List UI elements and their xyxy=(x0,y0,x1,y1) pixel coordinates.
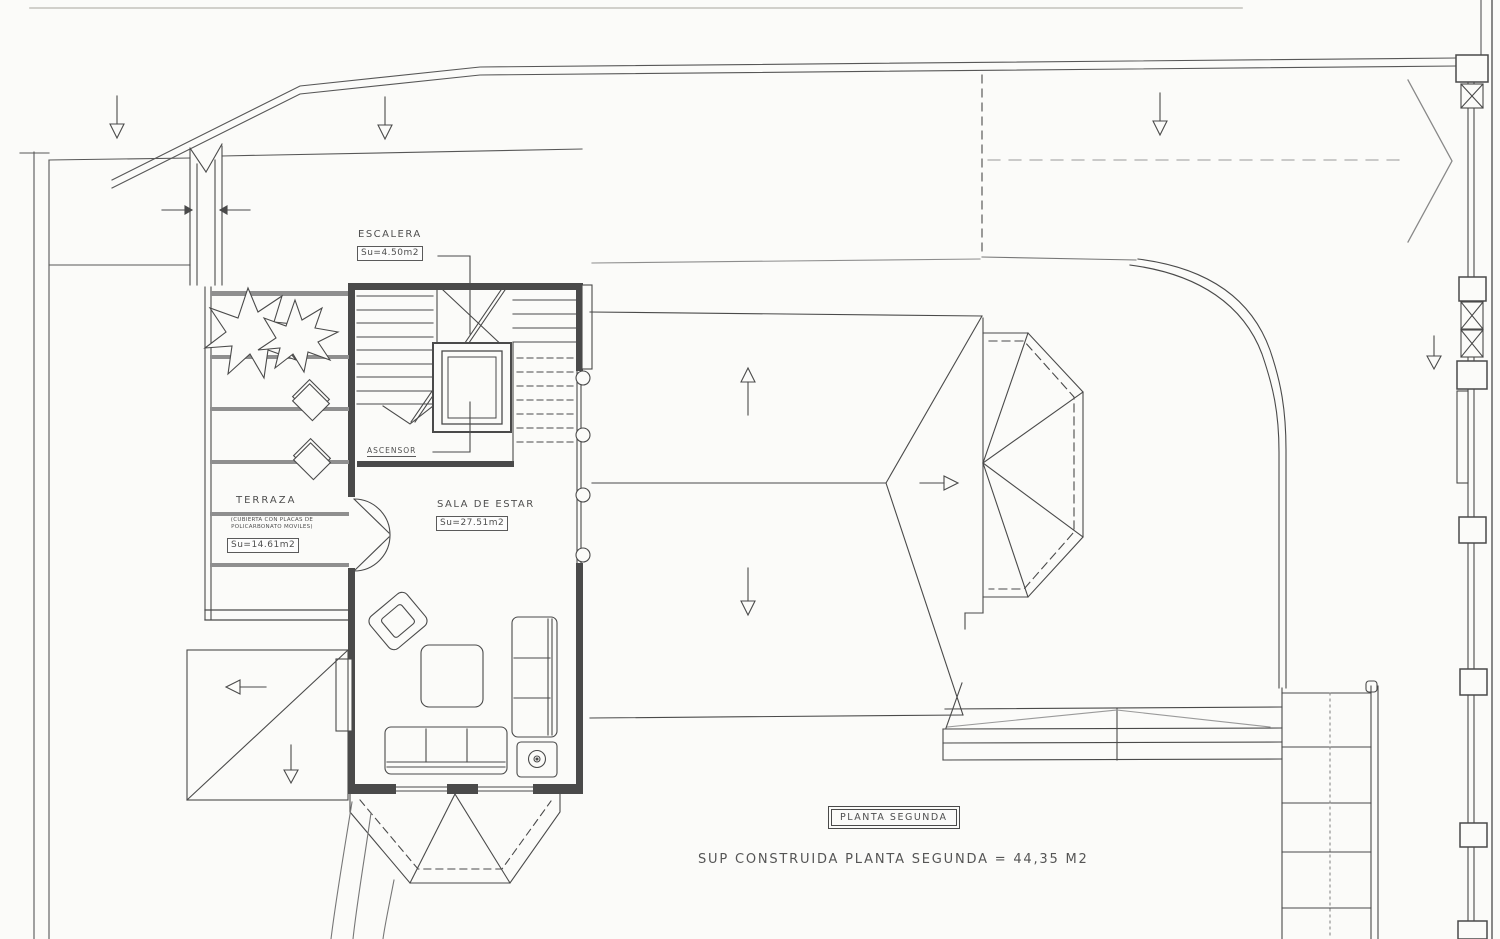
floor-title-box: PLANTA SEGUNDA xyxy=(828,806,960,829)
ascensor-label: ASCENSOR xyxy=(367,446,416,457)
access-area xyxy=(982,75,1452,260)
elevator-shaft xyxy=(433,343,511,432)
slope-arrow-down-1 xyxy=(110,96,124,138)
slope-arrow-down-3 xyxy=(1153,93,1167,135)
boundary-fence xyxy=(1456,55,1488,939)
escalera-label: ESCALERA xyxy=(358,229,422,240)
sofa-horizontal xyxy=(385,727,507,774)
slope-arrow-down-2 xyxy=(378,97,392,139)
slope-arrow-down-5 xyxy=(1427,336,1441,369)
channel-wall xyxy=(190,144,222,285)
garden-path-curves xyxy=(331,802,394,939)
built-area-text: SUP CONSTRUIDA PLANTA SEGUNDA = 44,35 M2 xyxy=(698,852,1089,867)
slope-arrow-left xyxy=(226,680,266,694)
porch-roof-strips xyxy=(943,683,1282,760)
fence-x-posts xyxy=(1461,84,1483,357)
bay-window-roof xyxy=(350,794,560,883)
main-roof xyxy=(590,312,982,718)
roof-arrow-up xyxy=(741,368,755,415)
terrace-table-2 xyxy=(291,439,332,480)
double-door xyxy=(354,499,390,571)
access-chevron-icon xyxy=(1408,80,1452,242)
right-wall-columns xyxy=(576,371,590,562)
terrace-table-1 xyxy=(290,380,331,421)
floorplan-page: ESCALERA Su=4.50m2 ASCENSOR TERRAZA (CUB… xyxy=(0,0,1500,939)
escalera-leader-line xyxy=(438,256,470,334)
roof-arrow-right xyxy=(920,476,958,490)
driveway-curve xyxy=(1130,259,1286,688)
lower-roof-square xyxy=(187,650,348,800)
escalera-area-box: Su=4.50m2 xyxy=(357,246,423,261)
slope-arrow-down-4 xyxy=(284,745,298,783)
terraza-note-line1: (CUBIERTA CON PLACAS DE xyxy=(231,517,313,523)
armchair xyxy=(366,589,430,652)
sala-de-estar-area-box: Su=27.51m2 xyxy=(436,516,508,531)
staircase-dashed-flight xyxy=(517,358,574,442)
tower-roof xyxy=(965,318,1083,629)
channel-dimension-arrows xyxy=(162,206,250,214)
coffee-table xyxy=(421,645,483,707)
roof-arrow-down xyxy=(741,568,755,615)
plot-boundary xyxy=(20,0,1492,939)
terraza-area-box: Su=14.61m2 xyxy=(227,538,299,553)
sala-de-estar-label: SALA DE ESTAR xyxy=(437,499,535,510)
floor-title: PLANTA SEGUNDA xyxy=(831,809,957,826)
floorplan-linework xyxy=(0,0,1500,939)
sofa-vertical xyxy=(512,617,557,737)
wall-pier xyxy=(582,285,592,369)
terraza-note: (CUBIERTA CON PLACAS DE POLICARBONATO MO… xyxy=(222,517,322,531)
right-wall-windows xyxy=(577,371,581,563)
side-table-lamp xyxy=(517,742,557,777)
terraza-label: TERRAZA xyxy=(236,495,296,506)
terraza-note-line2: POLICARBONATO MOVILES) xyxy=(231,524,313,530)
pergola-grid xyxy=(1282,681,1378,939)
